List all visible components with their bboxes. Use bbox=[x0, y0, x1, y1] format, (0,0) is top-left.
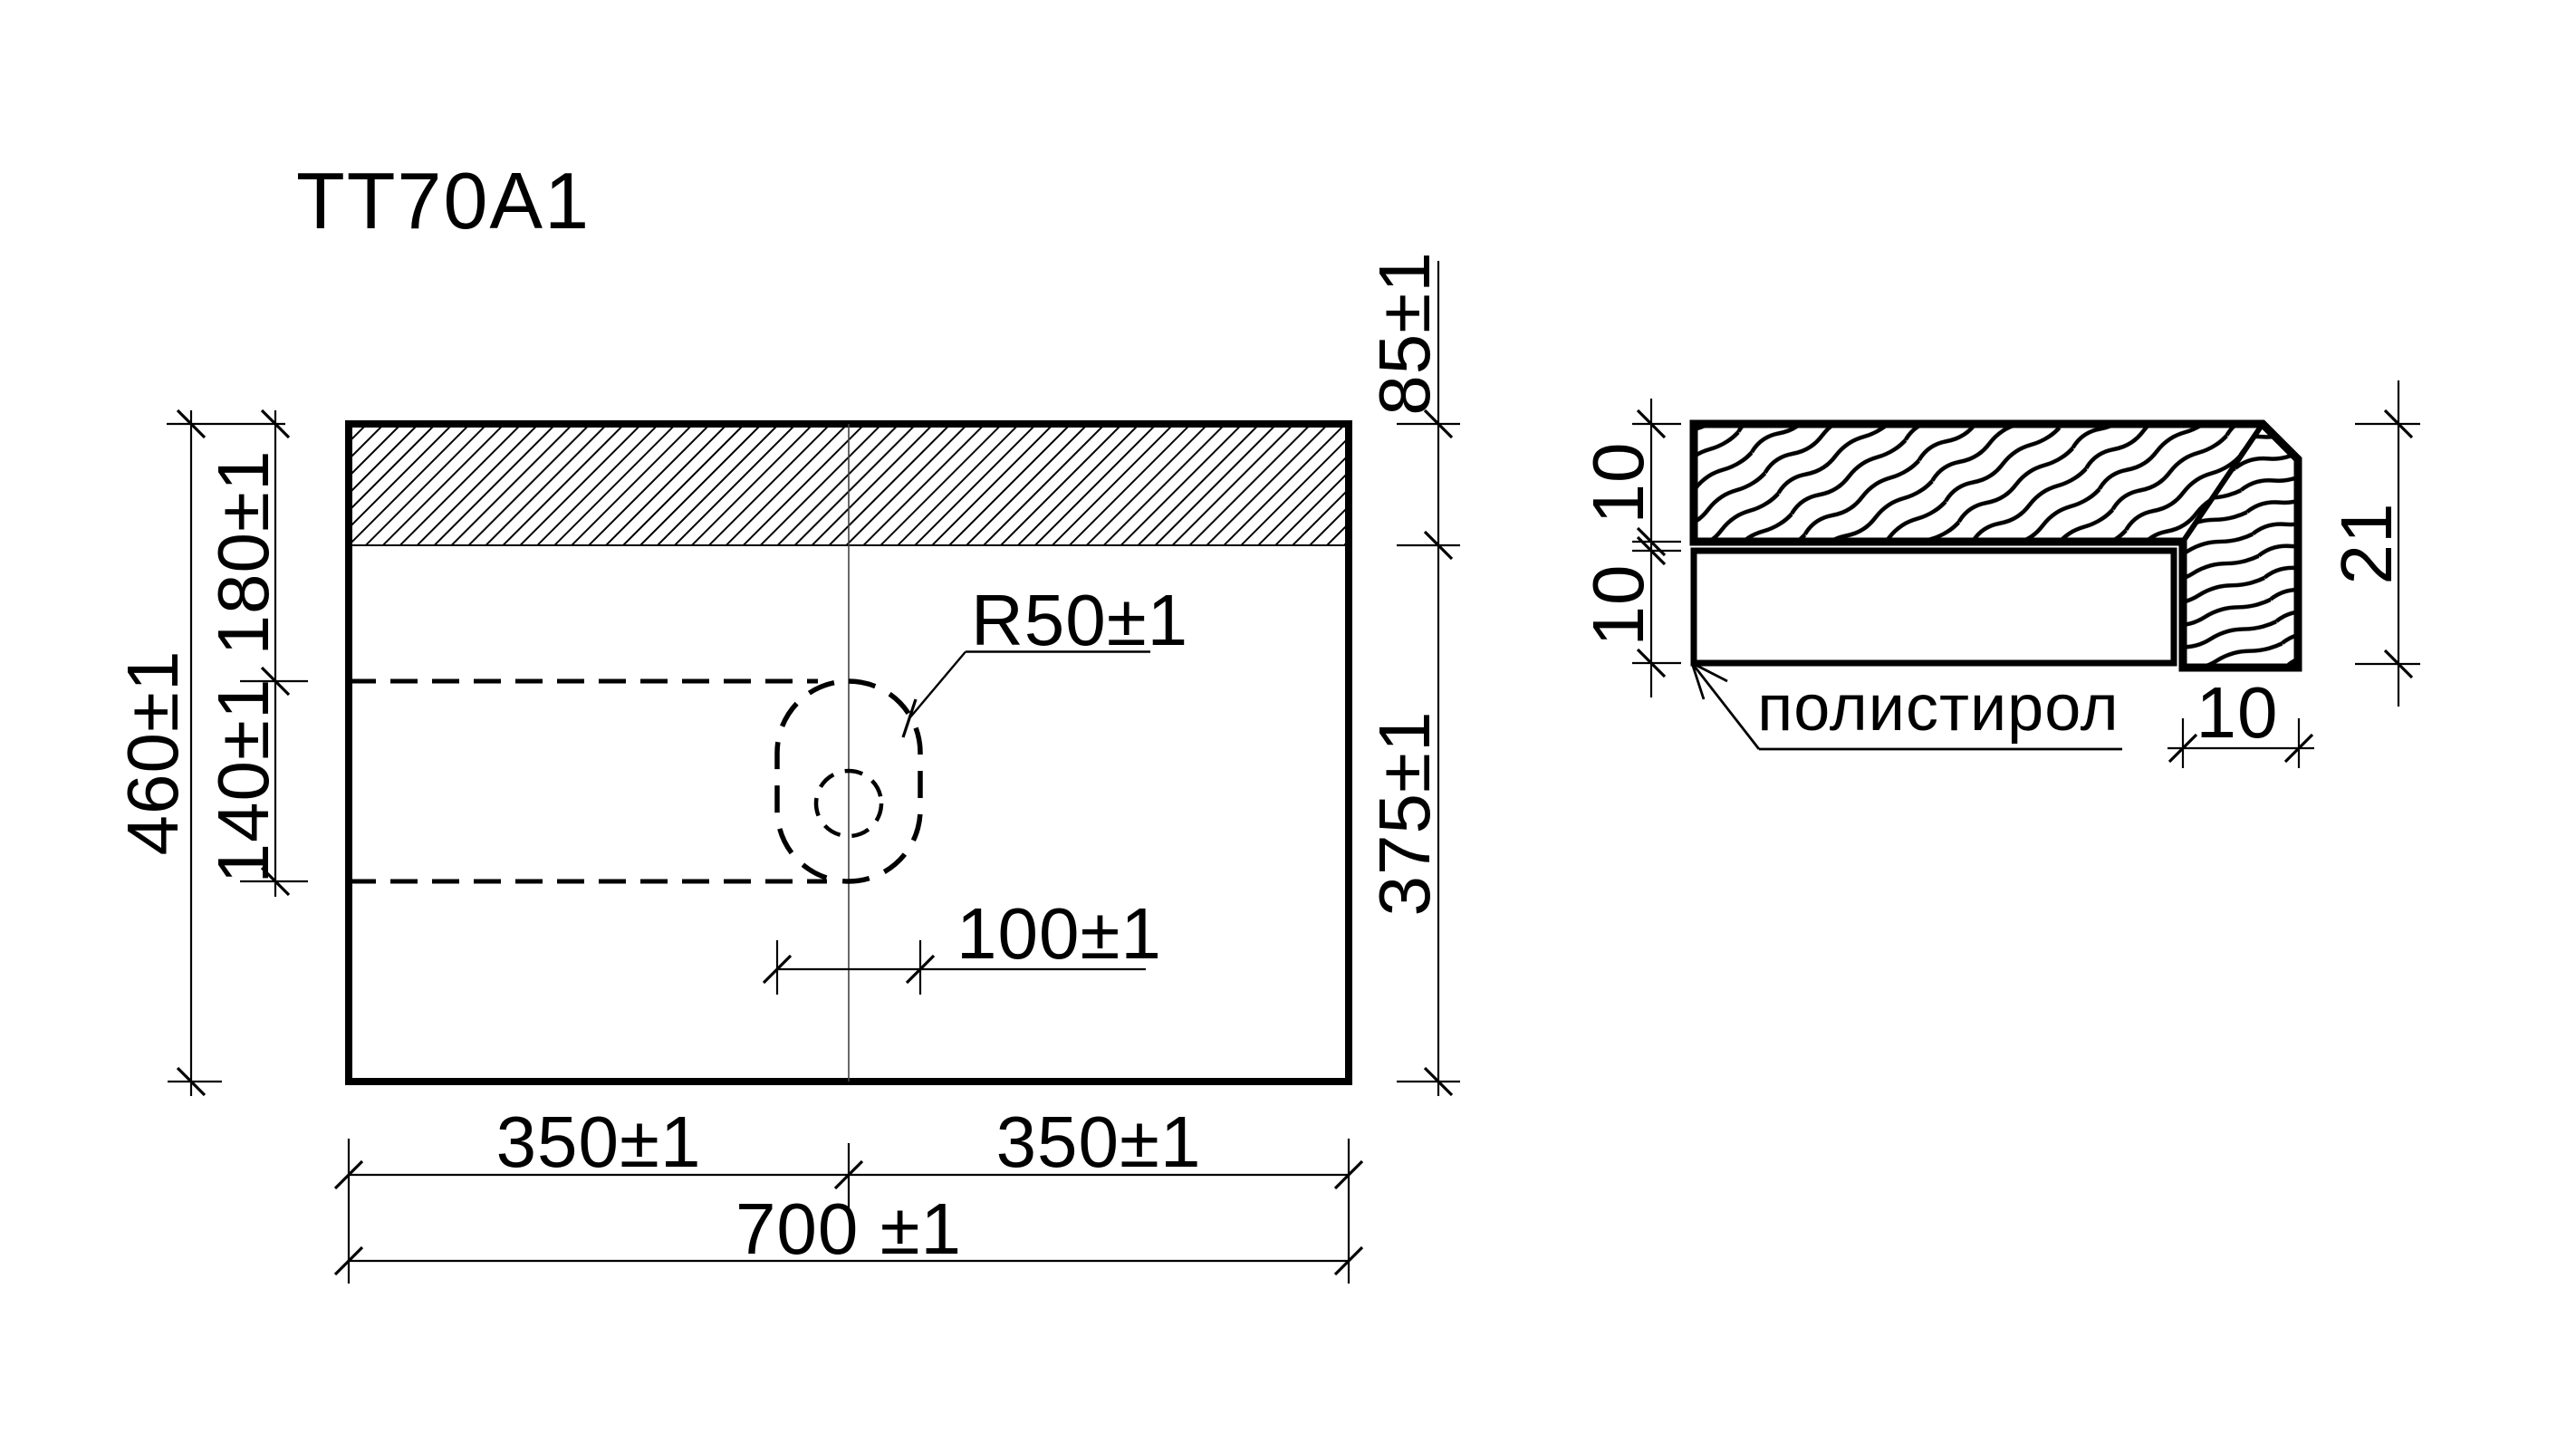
dim-hole-width: 100±1 bbox=[956, 893, 1162, 974]
dim-edge-height: 21 bbox=[2326, 503, 2407, 585]
drawing-title: TT70A1 bbox=[296, 156, 591, 245]
technical-drawing: TT70A1 R50±1 100±1 bbox=[0, 0, 2576, 1433]
dim-hole-span: 140±1 bbox=[203, 678, 284, 884]
dim-left-half: 350±1 bbox=[496, 1101, 702, 1182]
dim-right-half: 350±1 bbox=[996, 1101, 1202, 1182]
polystyrene-layer bbox=[1694, 551, 2174, 663]
dim-total-height: 460±1 bbox=[112, 650, 193, 856]
drawing-sheet: TT70A1 R50±1 100±1 bbox=[0, 0, 2576, 1433]
material-label: полистирол bbox=[1757, 672, 2119, 745]
dim-back-band-height: 85±1 bbox=[1364, 251, 1445, 415]
dim-bottom-layer: 10 bbox=[1578, 564, 1658, 647]
dim-upper-offset: 180±1 bbox=[203, 450, 284, 656]
dim-top-layer: 10 bbox=[1578, 442, 1658, 524]
dim-hole-radius: R50±1 bbox=[971, 580, 1188, 660]
dim-front-height: 375±1 bbox=[1364, 711, 1445, 917]
dim-edge-depth: 10 bbox=[2196, 672, 2279, 753]
top-slab-grain bbox=[1694, 424, 2263, 542]
dim-total-width: 700 ±1 bbox=[735, 1188, 962, 1269]
